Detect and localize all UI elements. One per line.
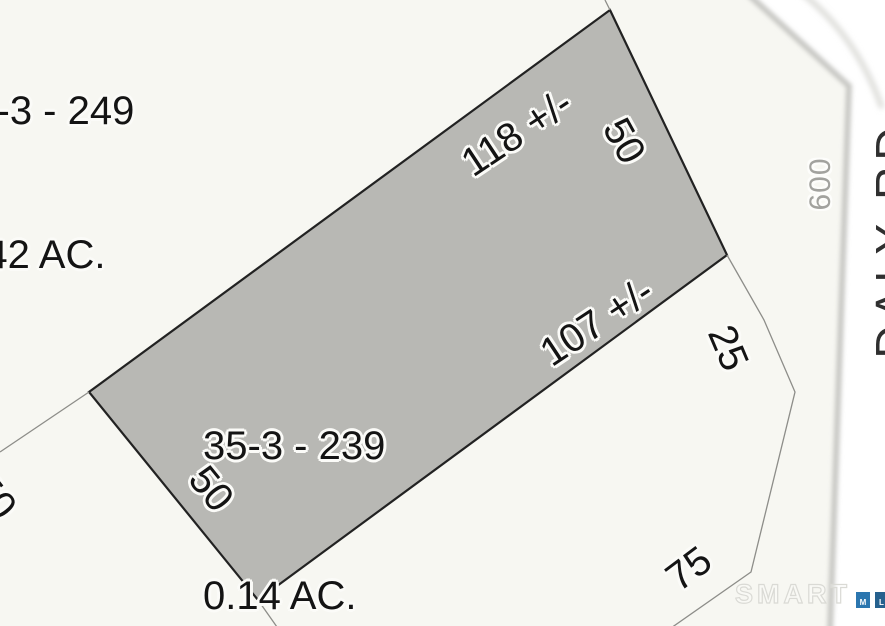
boundary-line-west (0, 392, 89, 452)
road-surface (748, 0, 885, 626)
parcel-249-id: 35-3 - 249 (0, 87, 134, 135)
parcel-238-label: 35-3 - 238 (418, 509, 638, 626)
smartmls-watermark: SMART M L S (735, 581, 885, 608)
parcel-238-id-line1: 35-3 (418, 617, 638, 626)
parcel-249-label: 35-3 - 249 0.42 AC. (0, 0, 134, 375)
smartmls-brand-text: SMART (735, 581, 851, 608)
parcel-237-label: 35-3 - 237 (0, 585, 156, 626)
house-number-600-label: 600 (797, 157, 845, 210)
mls-l-badge: L (875, 592, 885, 608)
parcel-239-label: 35-3 - 239 0.14 AC. (203, 321, 385, 626)
road-name-label: DALY RD (868, 121, 885, 358)
parcel-239-acreage: 0.14 AC. (203, 571, 385, 621)
boundary-line-north (605, 0, 610, 10)
parcel-239-id: 35-3 - 239 (203, 421, 385, 471)
road-edge-line (748, 0, 849, 626)
map-viewport[interactable]: 35-3 - 249 0.42 AC. 35-3 - 239 0.14 AC. … (0, 0, 885, 626)
mls-m-badge: M (856, 592, 870, 608)
parcel-249-acreage: 0.42 AC. (0, 231, 134, 279)
